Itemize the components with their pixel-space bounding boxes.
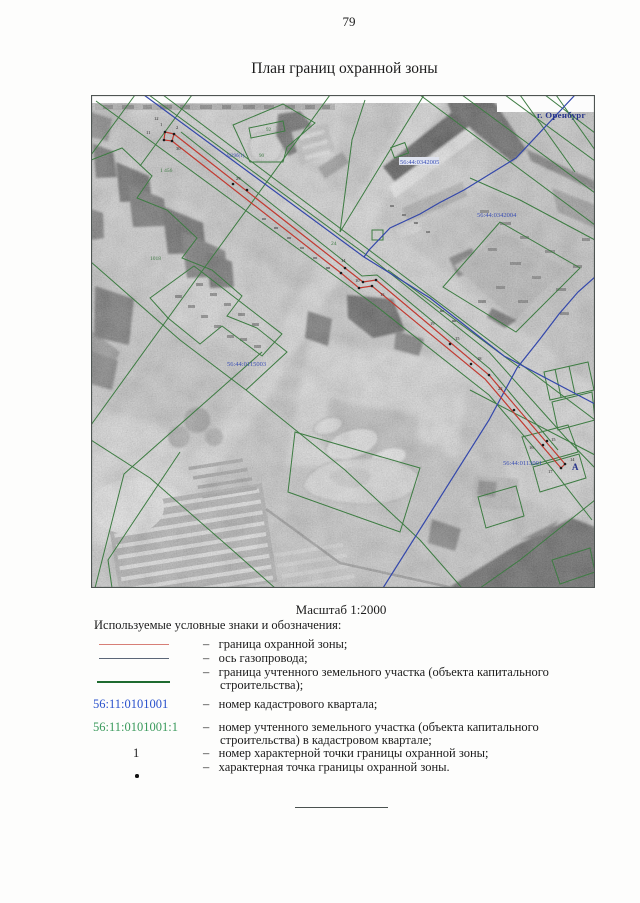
svg-text:1029б(1): 1029б(1): [226, 154, 245, 159]
svg-text:10: 10: [355, 278, 360, 283]
svg-text:30: 30: [176, 146, 181, 151]
svg-text:15: 15: [551, 437, 556, 442]
svg-text:А: А: [572, 462, 579, 472]
svg-text:17: 17: [548, 469, 553, 474]
svg-text:15: 15: [455, 336, 460, 341]
svg-text:1: 1: [160, 122, 162, 127]
svg-text:1 456: 1 456: [160, 168, 173, 174]
svg-text:56:44:0115003: 56:44:0115003: [227, 361, 266, 368]
svg-text:90: 90: [259, 154, 265, 159]
svg-text:24: 24: [331, 241, 337, 247]
svg-text:19: 19: [430, 321, 435, 326]
svg-text:29: 29: [236, 176, 241, 181]
svg-text:22: 22: [498, 386, 503, 391]
svg-text:16: 16: [529, 445, 534, 450]
svg-text:56:44:0113001: 56:44:0113001: [503, 460, 542, 467]
svg-text:92: 92: [266, 128, 272, 133]
svg-text:2: 2: [176, 125, 178, 130]
svg-text:13: 13: [380, 292, 385, 297]
svg-text:11: 11: [146, 130, 150, 135]
svg-text:12: 12: [154, 116, 159, 121]
svg-text:18: 18: [477, 356, 482, 361]
svg-text:14: 14: [341, 258, 346, 263]
svg-text:1018: 1018: [150, 256, 161, 262]
svg-text:г. Оренбург: г. Оренбург: [537, 110, 586, 120]
svg-text:56:44:0342005: 56:44:0342005: [400, 159, 439, 166]
svg-text:56:44:0342004: 56:44:0342004: [477, 212, 517, 219]
